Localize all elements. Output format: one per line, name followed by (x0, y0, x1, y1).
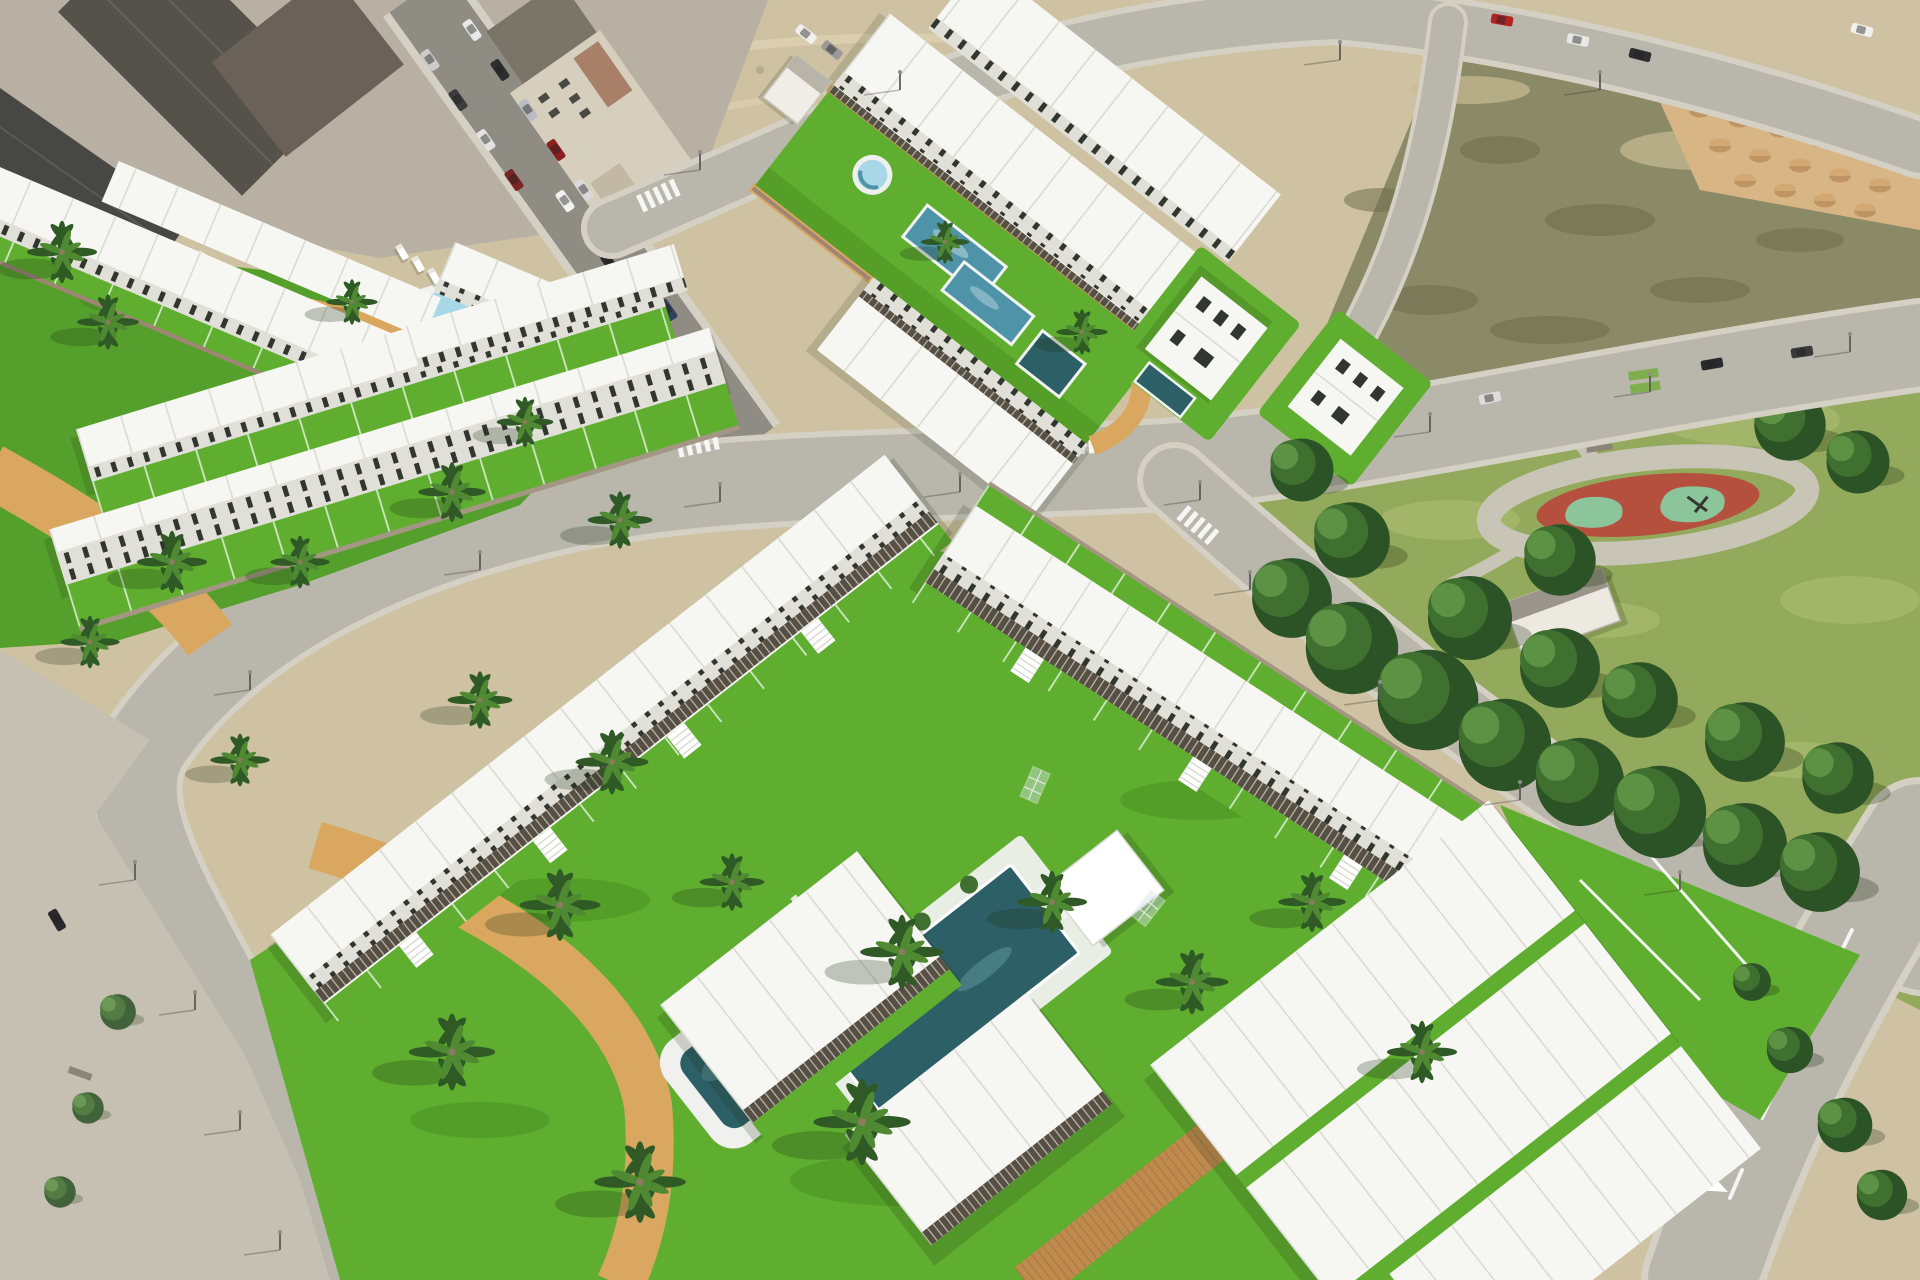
aerial-render: VILLAGE (0, 0, 1920, 1280)
scene-canvas: VILLAGE (0, 0, 1920, 1280)
